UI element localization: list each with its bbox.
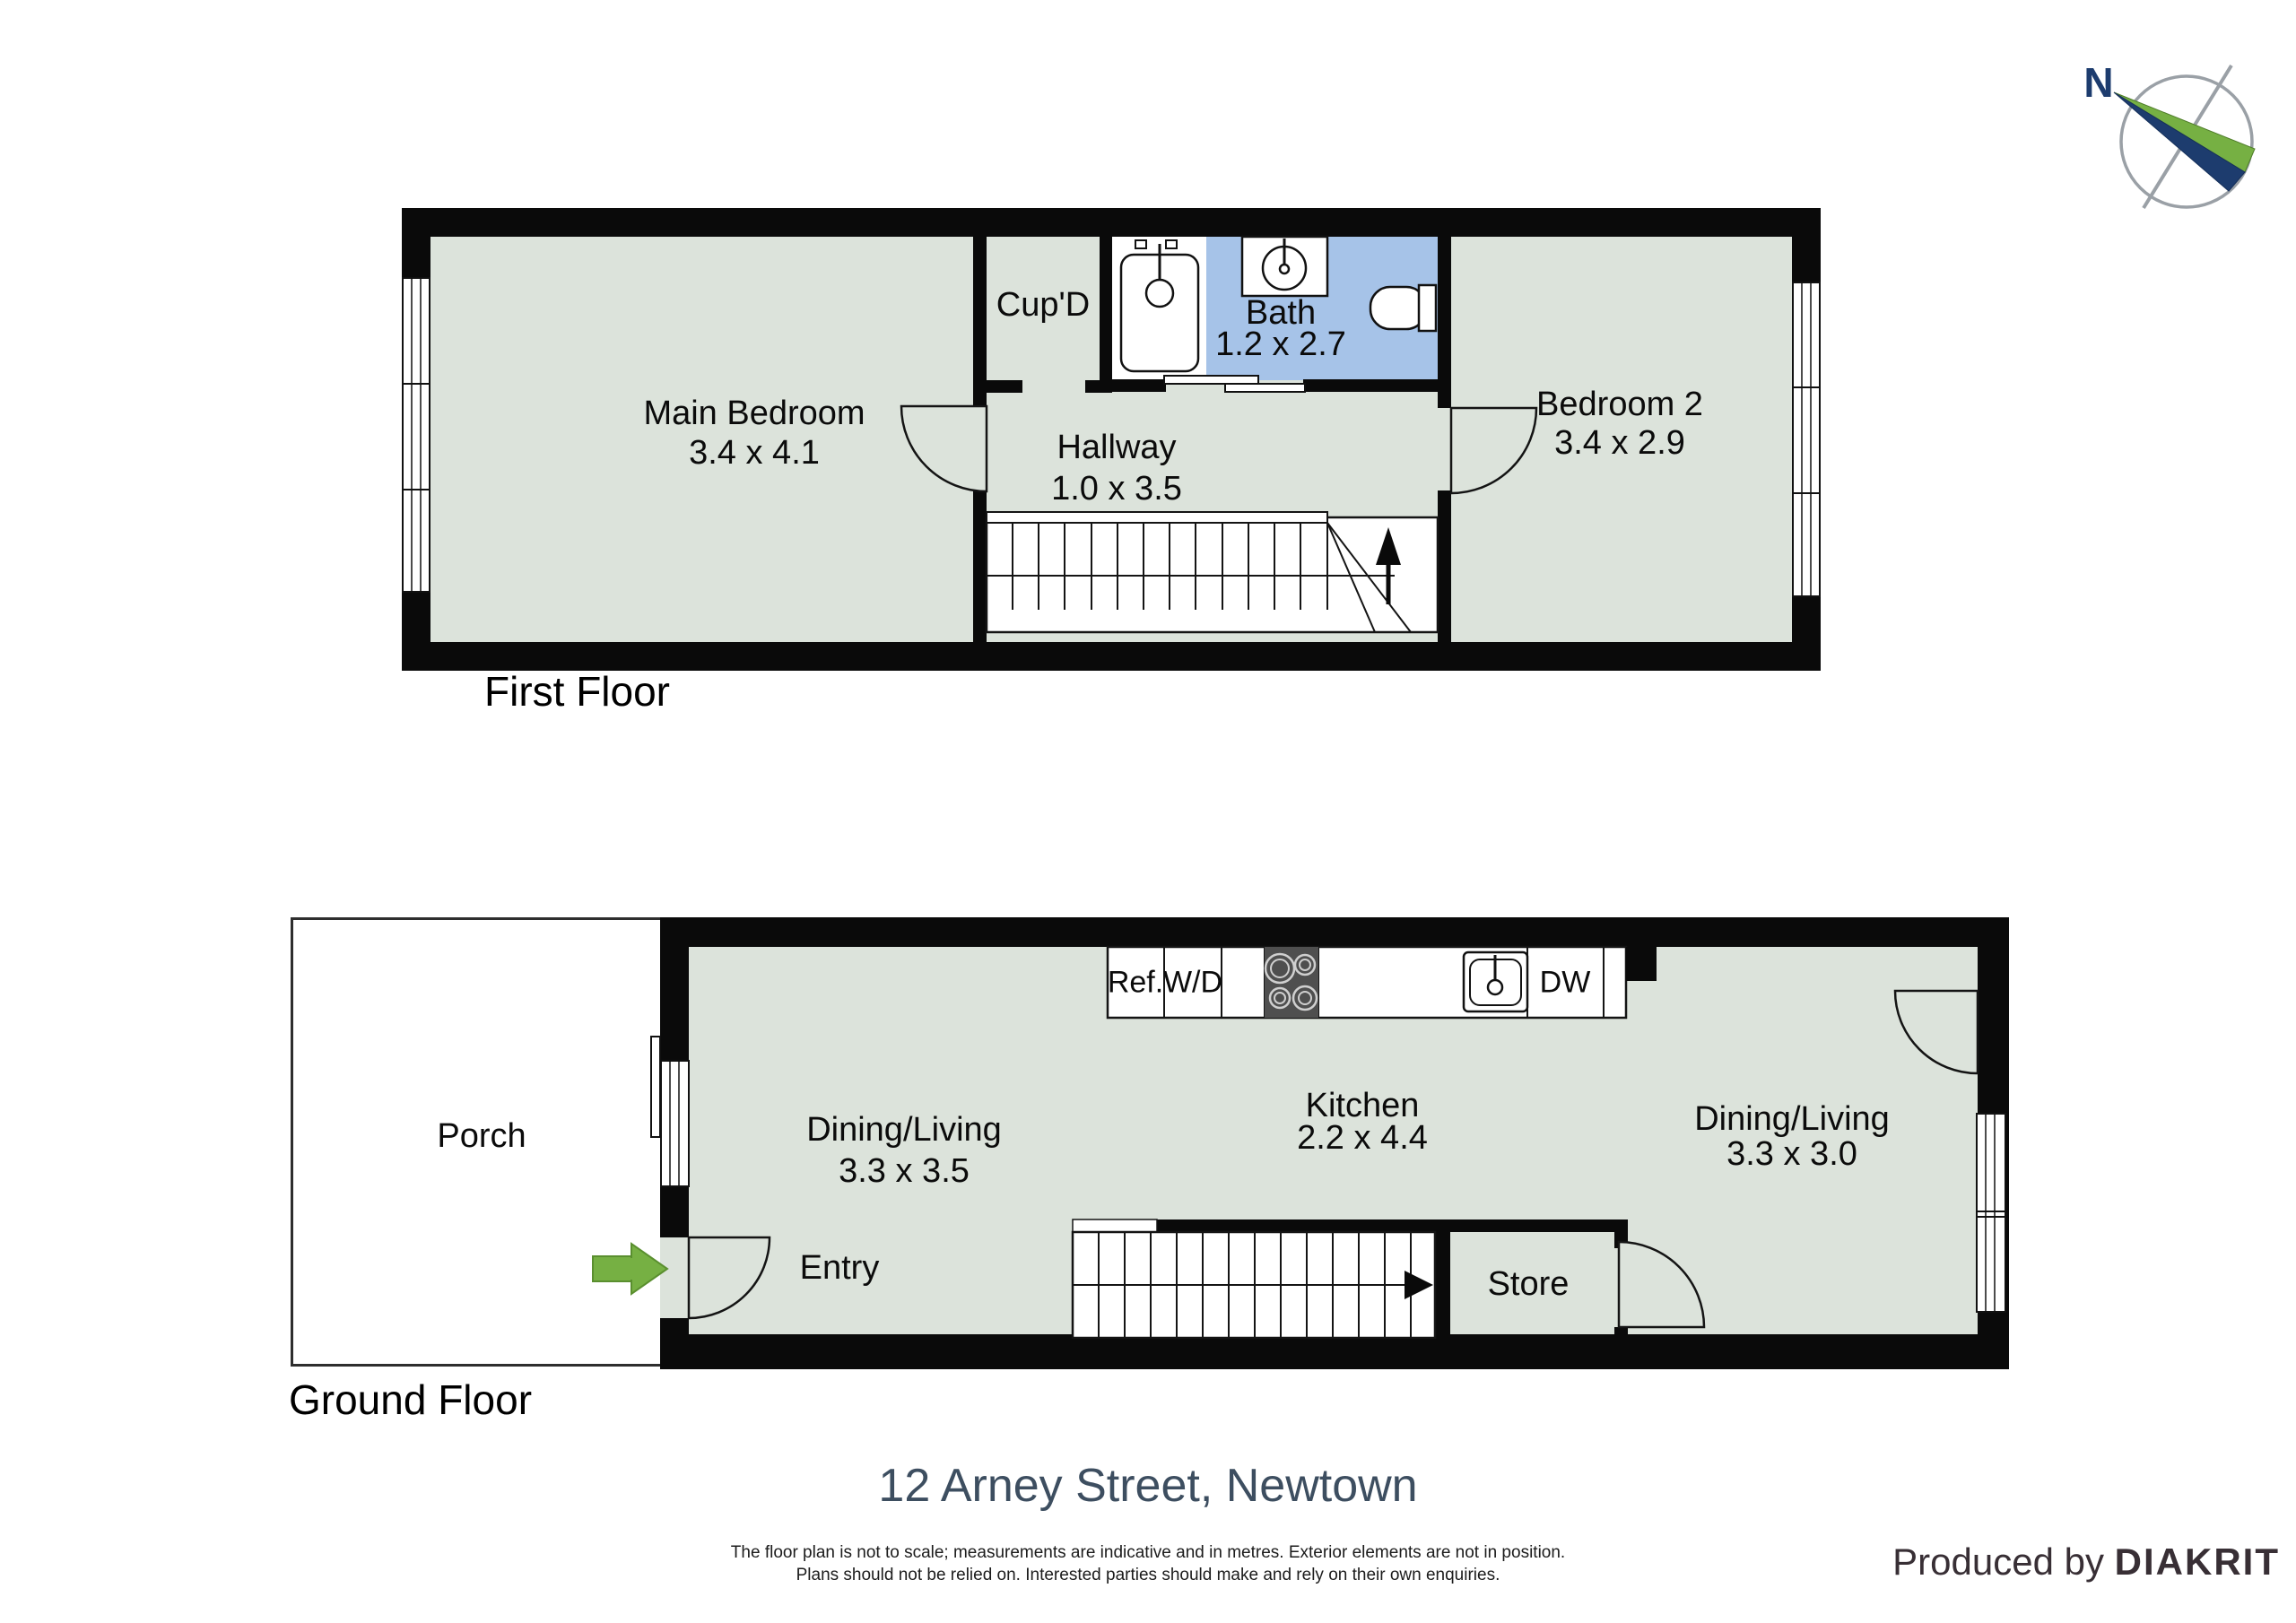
room-dims-main-bedroom: 3.4 x 4.1: [689, 435, 820, 473]
room-label-porch: Porch: [437, 1118, 526, 1156]
room-label-entry: Entry: [800, 1250, 880, 1288]
kitchen-sink-icon: [1464, 952, 1527, 1011]
rear-window: [1977, 1114, 2005, 1312]
producer-logo: DIAKRIT: [2115, 1541, 2280, 1583]
disclaimer-line2: Plans should not be relied on. Intereste…: [796, 1566, 1500, 1585]
stairs-open-strip: [1073, 1219, 1157, 1232]
main-bedroom-window: [403, 278, 430, 592]
room-dims-dining-living-right: 3.3 x 3.0: [1726, 1136, 1857, 1174]
producer-credit: Produced by DIAKRIT: [1892, 1541, 2280, 1584]
produced-by-label: Produced by: [1892, 1541, 2104, 1583]
room-label-dining-living-left: Dining/Living: [806, 1112, 1002, 1150]
stairs-first-floor: [987, 512, 1438, 632]
toilet-icon: [1370, 285, 1436, 331]
room-dims-dining-living-left: 3.3 x 3.5: [839, 1153, 970, 1191]
room-label-dining-living-right: Dining/Living: [1694, 1101, 1890, 1139]
first-floor-plan: Main Bedroom 3.4 x 4.1 Cup'D Bath 1.2 x …: [402, 208, 1821, 671]
ground-floor-title: Ground Floor: [289, 1376, 532, 1424]
disclaimer-line1: The floor plan is not to scale; measurem…: [731, 1543, 1565, 1563]
north-label: N: [2083, 58, 2113, 107]
room-label-hallway: Hallway: [1057, 430, 1176, 467]
room-dims-kitchen: 2.2 x 4.4: [1297, 1120, 1428, 1158]
entry-arrow-icon: [588, 1242, 671, 1298]
compass-needle-green-icon: [2114, 92, 2255, 172]
appliance-label-dishwasher: DW: [1540, 966, 1591, 1001]
bathroom-sink-icon: [1242, 237, 1327, 296]
room-dims-bath: 1.2 x 2.7: [1215, 326, 1346, 364]
appliance-label-washer-dryer: W/D: [1163, 966, 1222, 1001]
room-label-bedroom2: Bedroom 2: [1536, 386, 1703, 424]
ground-floor-plan: Dining/Living 3.3 x 3.5 Kitchen 2.2 x 4.…: [660, 917, 2009, 1369]
room-dims-hallway: 1.0 x 3.5: [1051, 471, 1182, 508]
address-title: 12 Arney Street, Newtown: [878, 1459, 1417, 1513]
appliance-label-fridge: Ref.: [1108, 966, 1163, 1001]
room-label-store: Store: [1488, 1266, 1570, 1304]
room-dims-bedroom2: 3.4 x 2.9: [1554, 425, 1685, 463]
cooktop-icon: [1265, 947, 1318, 1018]
floorplan-page: N: [0, 0, 2296, 1623]
shower-icon: [1121, 240, 1198, 371]
room-label-main-bedroom: Main Bedroom: [643, 395, 865, 433]
bedroom2-window: [1793, 282, 1820, 596]
first-floor-title: First Floor: [484, 667, 670, 716]
stairs-ground-floor: [1073, 1232, 1435, 1338]
room-label-cupd: Cup'D: [996, 287, 1090, 325]
